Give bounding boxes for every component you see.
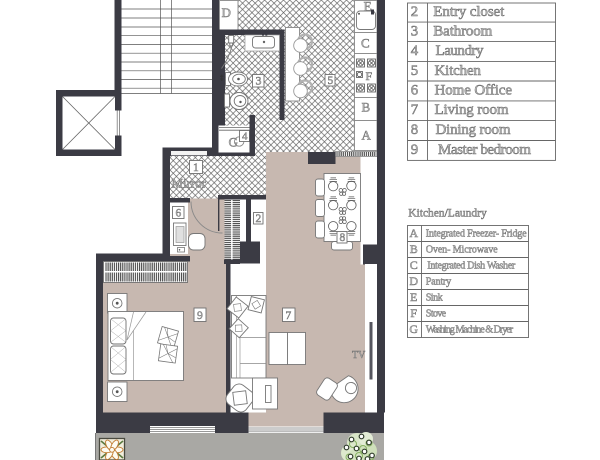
svg-text:G: G: [409, 322, 418, 336]
svg-text:Kitchen/Laundry: Kitchen/Laundry: [408, 206, 486, 220]
svg-text:Pantry: Pantry: [426, 277, 452, 288]
svg-text:4: 4: [411, 43, 419, 59]
svg-text:Integrated Freezer- Fridge: Integrated Freezer- Fridge: [426, 229, 527, 240]
svg-text:F: F: [366, 69, 373, 83]
svg-text:Bathroom: Bathroom: [433, 23, 492, 39]
svg-text:F: F: [410, 306, 417, 320]
svg-text:8: 8: [411, 122, 418, 138]
svg-text:Living room: Living room: [435, 102, 509, 118]
svg-text:B: B: [410, 242, 418, 256]
svg-text:2: 2: [411, 4, 418, 20]
svg-text:Oven- Microwave: Oven- Microwave: [426, 245, 498, 256]
svg-text:Entry closet: Entry closet: [433, 4, 505, 20]
svg-text:Integrated Dish Washer: Integrated Dish Washer: [427, 261, 516, 272]
svg-text:C: C: [361, 36, 370, 51]
svg-text:2: 2: [256, 213, 262, 225]
svg-text:Master bedroom: Master bedroom: [438, 142, 531, 158]
svg-text:Mirror: Mirror: [172, 176, 207, 191]
svg-text:Home Office: Home Office: [435, 82, 513, 98]
svg-text:A: A: [362, 128, 372, 143]
svg-text:Laundry: Laundry: [436, 43, 485, 59]
svg-text:6: 6: [176, 208, 182, 220]
svg-text:3: 3: [411, 23, 418, 39]
svg-text:Dining room: Dining room: [436, 122, 511, 138]
svg-text:7: 7: [411, 102, 418, 118]
svg-text:7: 7: [286, 310, 292, 322]
svg-text:9: 9: [411, 142, 418, 158]
svg-text:5: 5: [411, 63, 418, 79]
svg-text:B: B: [362, 100, 371, 115]
svg-text:A: A: [409, 226, 418, 240]
svg-text:3: 3: [256, 74, 262, 88]
svg-text:Washing Machine & Dryer: Washing Machine & Dryer: [426, 325, 514, 336]
svg-text:Sink: Sink: [426, 293, 444, 304]
svg-text:9: 9: [197, 310, 203, 322]
svg-text:Kitchen: Kitchen: [435, 63, 482, 79]
svg-text:D: D: [222, 5, 231, 20]
svg-text:D: D: [409, 274, 418, 288]
svg-text:1: 1: [193, 162, 199, 174]
svg-text:5: 5: [328, 75, 334, 87]
svg-text:TV: TV: [352, 350, 366, 361]
svg-text:4: 4: [242, 131, 248, 143]
svg-text:C: C: [410, 258, 418, 272]
svg-text:6: 6: [411, 82, 418, 98]
svg-text:G: G: [229, 135, 238, 150]
svg-text:Stove: Stove: [426, 309, 447, 320]
svg-text:8: 8: [340, 232, 346, 244]
svg-text:E: E: [410, 290, 417, 304]
